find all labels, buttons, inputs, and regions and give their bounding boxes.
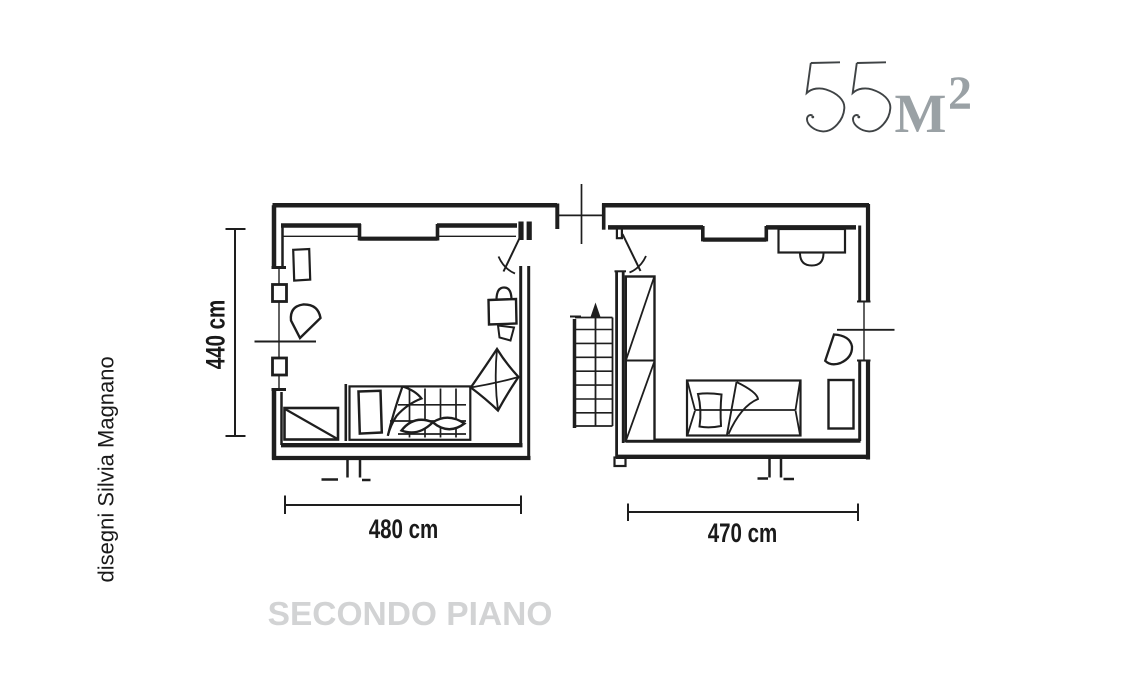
svg-text:2: 2: [948, 67, 972, 120]
svg-text:470 cm: 470 cm: [708, 518, 778, 548]
svg-text:480 cm: 480 cm: [369, 514, 439, 544]
svg-text:440 cm: 440 cm: [201, 300, 231, 370]
svg-text:SECONDO PIANO: SECONDO PIANO: [268, 596, 553, 633]
svg-text:disegni Silvia Magnano: disegni Silvia Magnano: [94, 356, 119, 582]
svg-text:M: M: [895, 83, 947, 144]
